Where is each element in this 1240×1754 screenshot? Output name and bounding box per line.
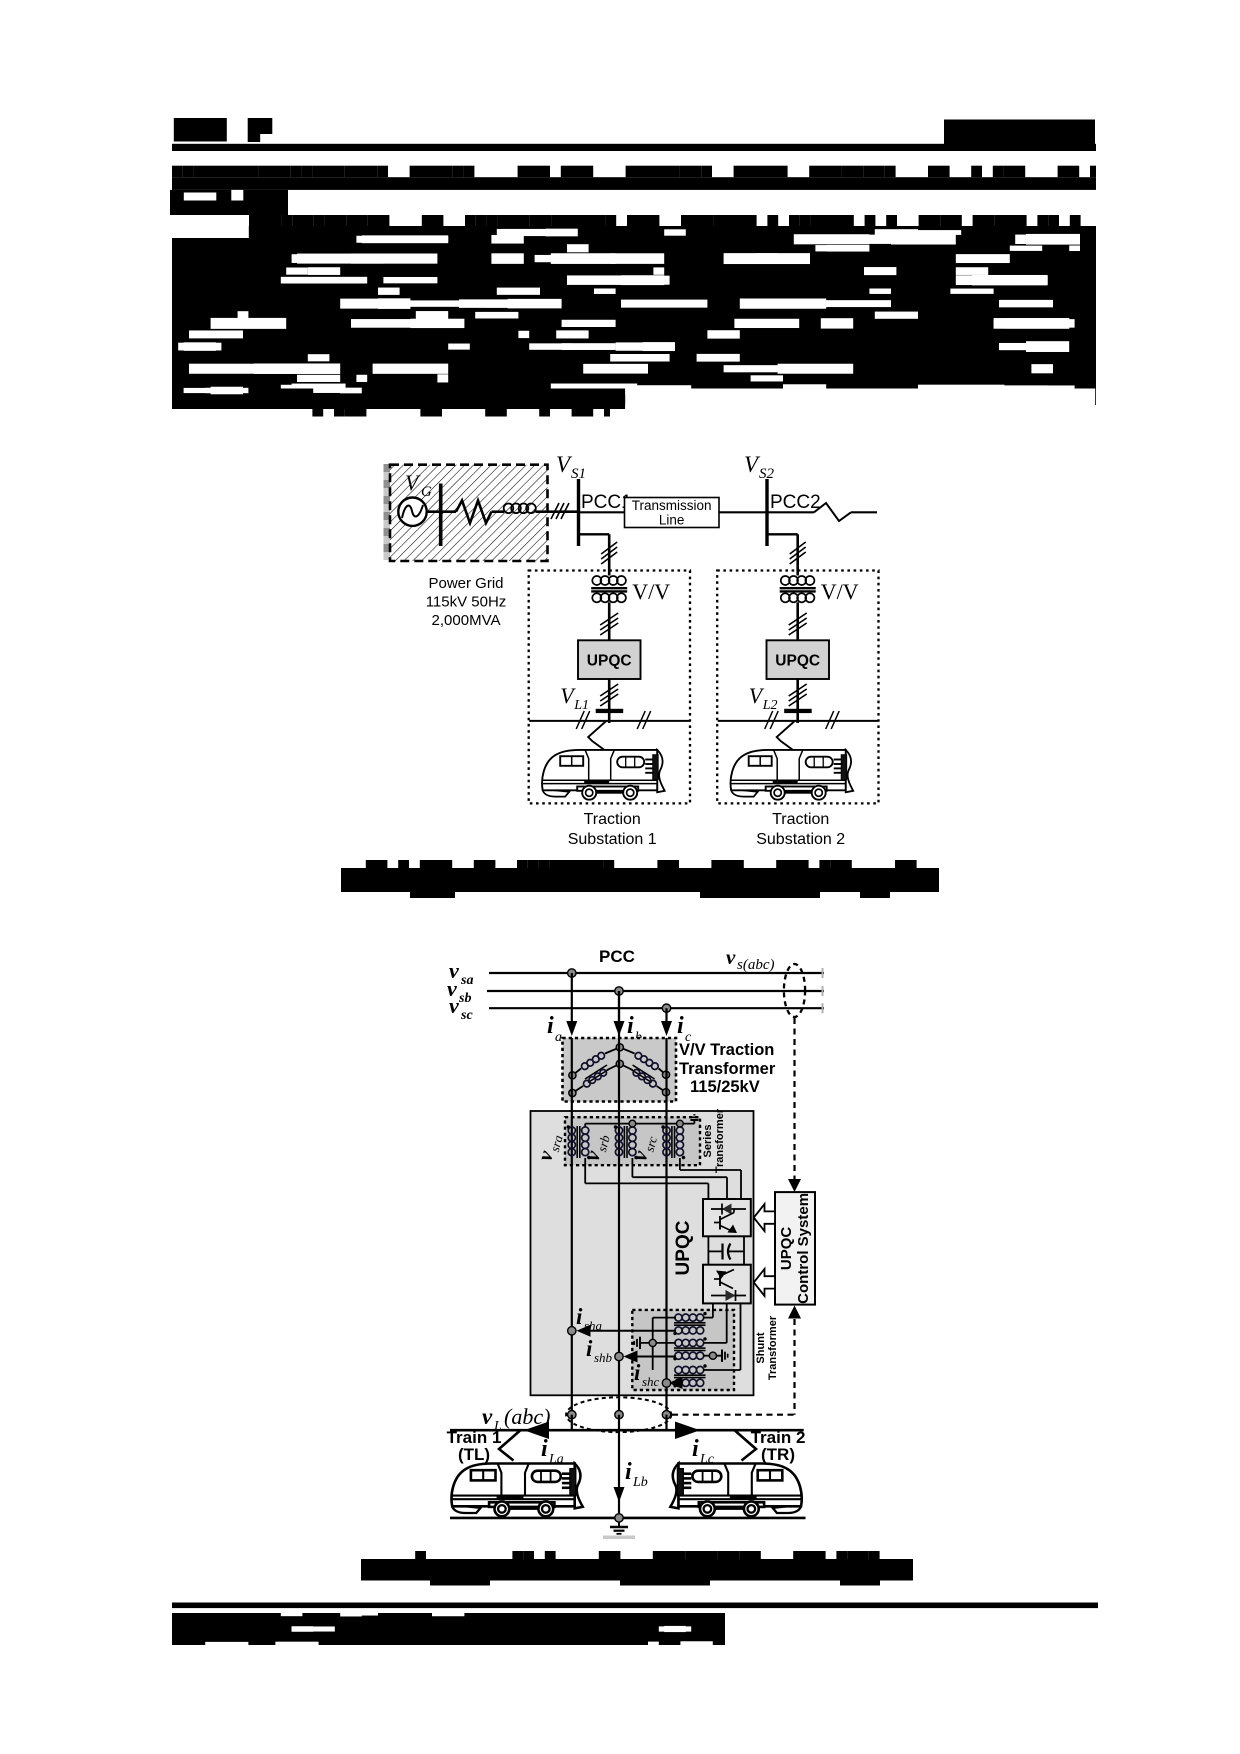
svg-text:i: i [692,1436,699,1462]
svg-text:sb: sb [458,991,471,1006]
svg-text:Transformer: Transformer [767,1315,779,1380]
svg-text:Traction: Traction [584,811,641,828]
svg-text:i: i [677,1013,684,1039]
svg-text:V/V Traction: V/V Traction [679,1041,774,1059]
svg-text:sha: sha [584,1318,603,1333]
svg-text:Substation 1: Substation 1 [568,831,657,848]
svg-text:PCC2: PCC2 [770,492,821,513]
svg-text:V/V: V/V [821,579,859,604]
svg-text:Shunt: Shunt [755,1332,767,1363]
svg-text:Line: Line [659,513,685,528]
svg-text:s(abc): s(abc) [737,957,775,973]
svg-text:V/V: V/V [632,579,670,604]
svg-text:UPQC: UPQC [587,653,632,670]
svg-text:v: v [726,945,736,969]
svg-text:Transformer: Transformer [679,1060,776,1078]
svg-text:L1: L1 [573,698,589,713]
svg-text:v: v [449,993,459,1018]
svg-text:Control System: Control System [795,1193,812,1304]
svg-text:sa: sa [460,973,473,988]
svg-text:Lb: Lb [632,1475,648,1490]
svg-text:shc: shc [642,1374,660,1389]
svg-text:2,000MVA: 2,000MVA [432,612,501,629]
svg-text:i: i [625,1459,632,1485]
svg-text:i: i [541,1436,548,1462]
svg-text:v: v [482,1404,493,1429]
svg-text:(TL): (TL) [458,1445,490,1464]
svg-text:i: i [627,1013,634,1039]
svg-text:Power Grid: Power Grid [428,575,503,592]
svg-text:i: i [634,1360,641,1385]
svg-text:a: a [555,1030,562,1045]
svg-text:Transformer: Transformer [714,1108,726,1173]
svg-text:UPQC: UPQC [673,1220,694,1275]
svg-text:115/25kV: 115/25kV [690,1078,760,1096]
svg-text:sc: sc [460,1008,473,1023]
svg-text:L2: L2 [762,698,778,713]
svg-text:UPQC: UPQC [778,1227,795,1271]
svg-text:Traction: Traction [772,811,829,828]
svg-text:PCC: PCC [599,947,635,966]
svg-text:115kV 50Hz: 115kV 50Hz [426,594,507,611]
svg-text:UPQC: UPQC [775,653,820,670]
svg-text:(TR): (TR) [761,1445,795,1464]
svg-text:Substation 2: Substation 2 [756,831,845,848]
svg-text:G: G [421,484,432,500]
svg-text:Series: Series [702,1124,714,1157]
svg-text:i: i [547,1013,554,1039]
svg-text:shb: shb [594,1350,613,1365]
svg-text:i: i [586,1336,593,1361]
svg-text:i: i [576,1304,583,1329]
svg-text:Transmission: Transmission [632,498,712,513]
